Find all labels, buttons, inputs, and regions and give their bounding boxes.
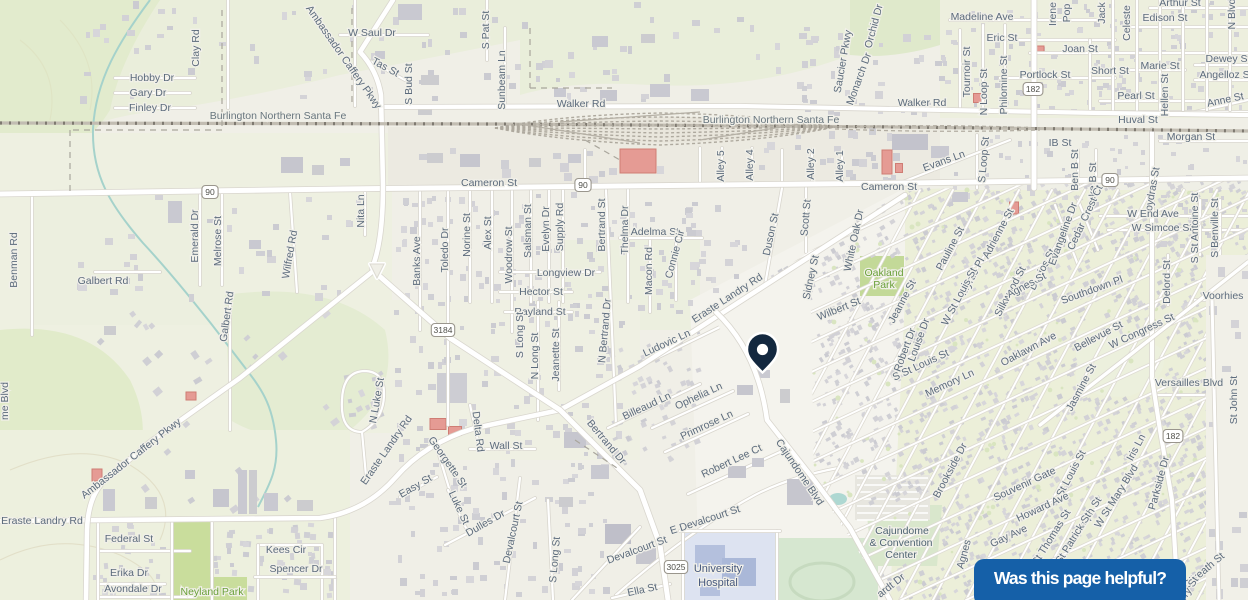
svg-text:Benman Rd: Benman Rd [8,232,20,288]
svg-text:182: 182 [1026,84,1040,94]
svg-text:Voorhies: Voorhies [1203,290,1244,302]
svg-text:Marie St: Marie St [1140,60,1179,72]
svg-text:Oakland: Oakland [864,267,903,279]
svg-text:S Long St: S Long St [514,312,526,358]
svg-text:90: 90 [1105,175,1115,185]
svg-text:Delord St: Delord St [1161,260,1173,304]
svg-text:Morgan St: Morgan St [1167,131,1216,143]
svg-text:3184: 3184 [434,325,453,335]
svg-text:N Long St: N Long St [529,333,541,380]
svg-text:Walker Rd: Walker Rd [557,98,606,110]
svg-text:Thelma Dr: Thelma Dr [619,205,631,255]
svg-text:Celeste: Celeste [1121,5,1133,41]
svg-text:Portlock St: Portlock St [1020,69,1071,81]
svg-text:Adelma St: Adelma St [631,226,680,238]
svg-text:S St Antoine St: S St Antoine St [1189,193,1201,264]
svg-text:Park: Park [873,279,895,291]
svg-text:Burlington Northern Santa Fe: Burlington Northern Santa Fe [703,114,840,126]
svg-text:Supply Rd: Supply Rd [554,203,566,252]
svg-text:S Pat St: S Pat St [480,11,492,50]
svg-text:Ben B St: Ben B St [1069,149,1081,191]
svg-text:Alley 5: Alley 5 [715,150,727,182]
svg-text:Edison St: Edison St [1143,12,1188,24]
svg-text:Bertrand St: Bertrand St [596,198,608,251]
svg-text:Erika Dr: Erika Dr [110,567,148,579]
svg-text:Angelloz St: Angelloz St [1199,69,1248,81]
svg-text:182: 182 [1166,431,1180,441]
svg-text:University: University [694,563,743,575]
svg-text:S Benville St: S Benville St [1209,198,1221,258]
svg-text:Alex St: Alex St [482,216,494,249]
svg-text:Alley 1: Alley 1 [834,150,846,182]
svg-text:Gary Dr: Gary Dr [130,87,167,99]
svg-text:Sunbeam Ln: Sunbeam Ln [496,50,508,110]
svg-text:Federal St: Federal St [105,533,154,545]
svg-text:Pearl St: Pearl St [1117,90,1154,102]
svg-text:Irene: Irene [1047,2,1059,26]
svg-text:Avondale Dr: Avondale Dr [104,583,162,595]
svg-text:Hospital: Hospital [698,577,738,589]
svg-text:Tournoir St: Tournoir St [961,47,973,98]
svg-text:3025: 3025 [667,562,686,572]
svg-text:St John St: St John St [1228,376,1240,425]
svg-text:Hobby Dr: Hobby Dr [130,72,175,84]
svg-text:W End Ave: W End Ave [1127,208,1179,220]
svg-text:Nita Ln: Nita Ln [355,194,367,227]
svg-text:& Convention: & Convention [869,537,932,549]
svg-text:W Simcoe St: W Simcoe St [1132,222,1193,234]
svg-text:IB St: IB St [1049,137,1072,149]
svg-text:Huval St: Huval St [1118,114,1158,126]
svg-text:Hector St: Hector St [519,286,563,298]
svg-text:N Loop St: N Loop St [978,69,990,116]
svg-text:Wall St: Wall St [490,440,523,452]
svg-text:Jack: Jack [1096,1,1108,23]
svg-text:Madeline Ave: Madeline Ave [951,11,1014,23]
svg-text:Norine St: Norine St [461,213,473,257]
svg-text:Philomine St: Philomine St [998,55,1010,114]
svg-text:Eric St: Eric St [987,32,1018,44]
svg-text:Jeanette St: Jeanette St [550,328,562,381]
svg-text:Cameron St: Cameron St [861,181,917,193]
svg-text:Clay Rd: Clay Rd [190,29,202,67]
svg-text:90: 90 [578,180,588,190]
svg-text:Salsman St: Salsman St [522,204,534,258]
svg-text:Eraste Landry Rd: Eraste Landry Rd [1,515,83,527]
svg-text:me Blvd: me Blvd [0,382,11,420]
svg-text:Short St: Short St [1091,65,1129,77]
svg-text:Kees Cir: Kees Cir [266,544,307,556]
svg-text:Arthur St: Arthur St [1159,0,1201,9]
svg-text:90: 90 [205,187,215,197]
svg-text:Versailles Blvd: Versailles Blvd [1155,377,1223,389]
svg-text:S Bud St: S Bud St [403,63,415,105]
svg-text:Melrose St: Melrose St [212,216,224,266]
svg-text:Toledo Dr: Toledo Dr [439,227,451,272]
svg-text:Dewey St: Dewey St [1206,53,1248,65]
svg-text:Neyland Park: Neyland Park [180,586,244,598]
svg-text:Macon Rd: Macon Rd [643,247,655,295]
svg-text:Banks Ave: Banks Ave [411,236,423,286]
svg-text:W Saul Dr: W Saul Dr [348,27,396,39]
svg-text:N Blvd: N Blvd [1226,0,1238,29]
svg-text:Cameron St: Cameron St [461,177,517,189]
svg-text:Pop: Pop [1061,4,1073,23]
svg-text:Spencer Dr: Spencer Dr [269,563,323,575]
svg-text:Woodrow St: Woodrow St [503,226,515,283]
svg-text:Joan St: Joan St [1062,43,1098,55]
svg-text:Alley 4: Alley 4 [744,149,756,181]
svg-text:Galbert Rd: Galbert Rd [78,275,129,287]
svg-text:Longview Dr: Longview Dr [537,267,596,279]
svg-text:Center: Center [885,549,917,561]
svg-text:Finley Dr: Finley Dr [129,102,172,114]
svg-text:Emerald Dr: Emerald Dr [189,209,201,263]
svg-text:Cajundome: Cajundome [875,525,929,537]
svg-text:Burlington Northern Santa Fe: Burlington Northern Santa Fe [210,110,347,122]
svg-text:Alley 2: Alley 2 [805,148,817,180]
svg-text:Hellen St: Hellen St [1159,74,1171,117]
svg-text:Walker Rd: Walker Rd [898,97,947,109]
svg-text:Evelyn Dr: Evelyn Dr [540,206,552,252]
